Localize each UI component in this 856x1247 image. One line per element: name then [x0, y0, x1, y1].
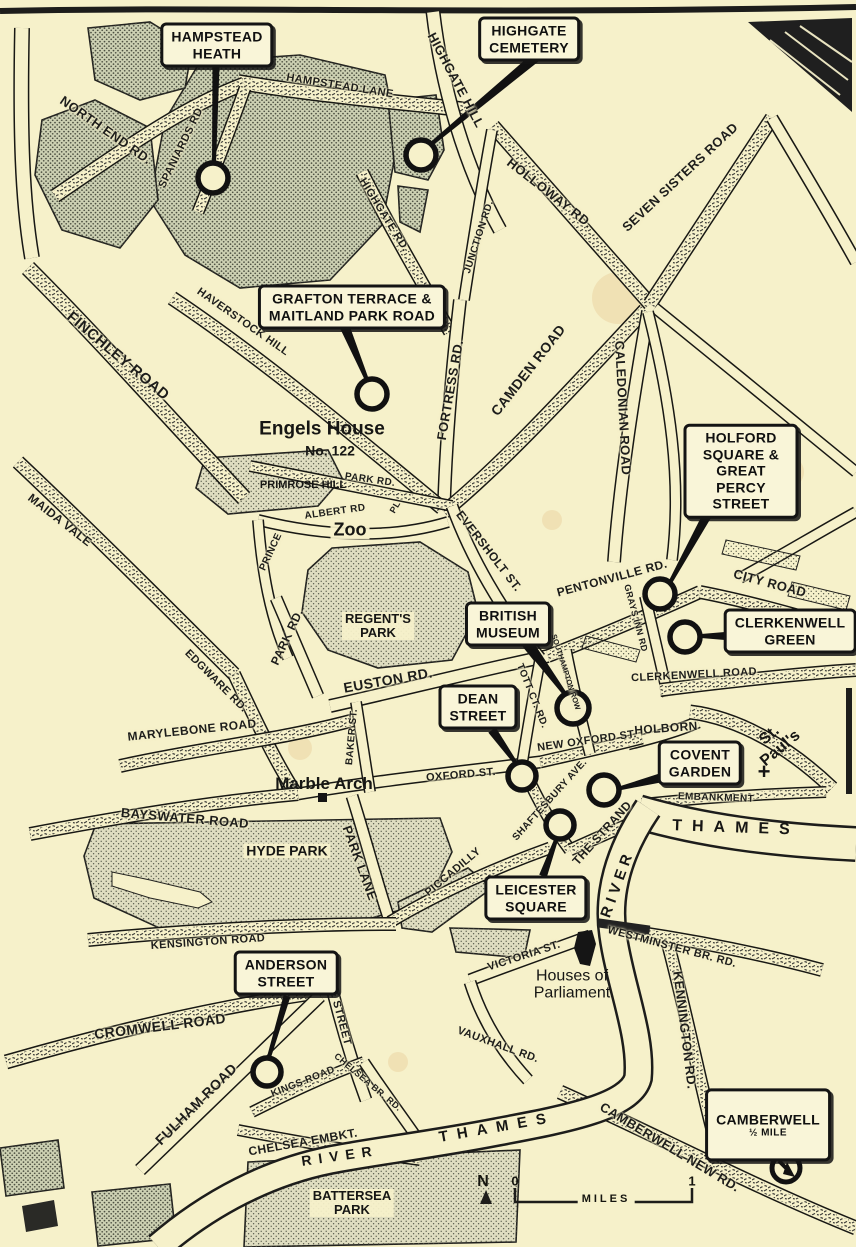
place-label-hyde-park: HYDE PARK	[243, 843, 330, 858]
site-marker-circle	[357, 379, 387, 409]
park-corner-sw1-stipple	[0, 1140, 64, 1196]
callout-grafton-terrace: GRAFTON TERRACE & MAITLAND PARK ROAD	[258, 284, 446, 329]
callout-anderson-street: ANDERSON STREET	[234, 950, 339, 995]
callout-camberwell-title: CAMBERWELL	[716, 1111, 820, 1127]
callout-camberwell-distance: ½ MILE	[716, 1127, 820, 1139]
site-marker-circle	[670, 622, 700, 652]
site-marker-circle	[198, 163, 228, 193]
callout-british-museum: BRITISH MUSEUM	[465, 601, 551, 646]
site-marker-circle	[253, 1058, 281, 1086]
place-label-engels-house-number: No. 122	[305, 443, 355, 458]
callout-camberwell: CAMBERWELL ½ MILE	[705, 1088, 831, 1161]
site-marker-circle	[589, 775, 619, 805]
site-marker-circle	[406, 140, 436, 170]
place-label-houses-of-parliament: Houses of Parliament	[534, 968, 610, 1003]
map-edge-bar	[846, 688, 852, 794]
callout-leicester-square: LEICESTER SQUARE	[484, 875, 587, 920]
houses-of-parliament-building	[574, 930, 596, 966]
marble-arch-square	[318, 793, 327, 802]
corner-triangle-ne	[748, 18, 852, 112]
city-block-patch	[582, 636, 640, 662]
site-marker-circle	[645, 579, 675, 609]
paper-stain	[542, 510, 562, 530]
compass-north-label: N	[477, 1173, 489, 1191]
place-label-battersea-park: BATTERSEA PARK	[310, 1189, 394, 1217]
scale-miles-label: MILES	[578, 1193, 635, 1205]
callout-leader-line	[488, 727, 516, 763]
site-marker-circle	[546, 811, 574, 839]
place-label-zoo: Zoo	[331, 520, 370, 539]
site-marker-circle	[508, 762, 536, 790]
place-label-marble-arch: Marble Arch	[275, 775, 373, 793]
road-surface	[740, 512, 856, 578]
road-surface	[21, 28, 32, 258]
callout-holford-square: HOLFORD SQUARE & GREAT PERCY STREET	[684, 424, 799, 519]
dark-block-sw	[22, 1200, 58, 1232]
map-canvas: NORTH END RD. SPANIARDS RD HAMPSTEAD LAN…	[0, 0, 856, 1247]
callout-leader-line	[339, 323, 368, 381]
scale-zero-label: 0	[511, 1174, 518, 1189]
road-speckle	[18, 462, 234, 674]
paper-stain	[388, 1052, 408, 1072]
callout-dean-street: DEAN STREET	[438, 684, 517, 729]
map-top-border	[0, 7, 856, 11]
callout-hampstead-heath: HAMPSTEAD HEATH	[160, 22, 273, 67]
scale-one-label: 1	[688, 1174, 695, 1189]
callout-covent-garden: COVENT GARDEN	[658, 740, 742, 785]
place-label-engels-house: Engels House	[259, 420, 385, 441]
road-surface	[772, 118, 856, 262]
place-label-primrose-hill: PRIMROSE HILL	[260, 480, 346, 492]
st-pauls-cross-icon: +	[758, 760, 771, 784]
park-highgate-cemetery-south-stipple	[398, 186, 428, 232]
place-label-regents-park: REGENT'S PARK	[342, 612, 414, 640]
callout-highgate-cemetery: HIGHGATE CEMETERY	[478, 16, 580, 61]
callout-clerkenwell-green: CLERKENWELL GREEN	[724, 608, 856, 653]
